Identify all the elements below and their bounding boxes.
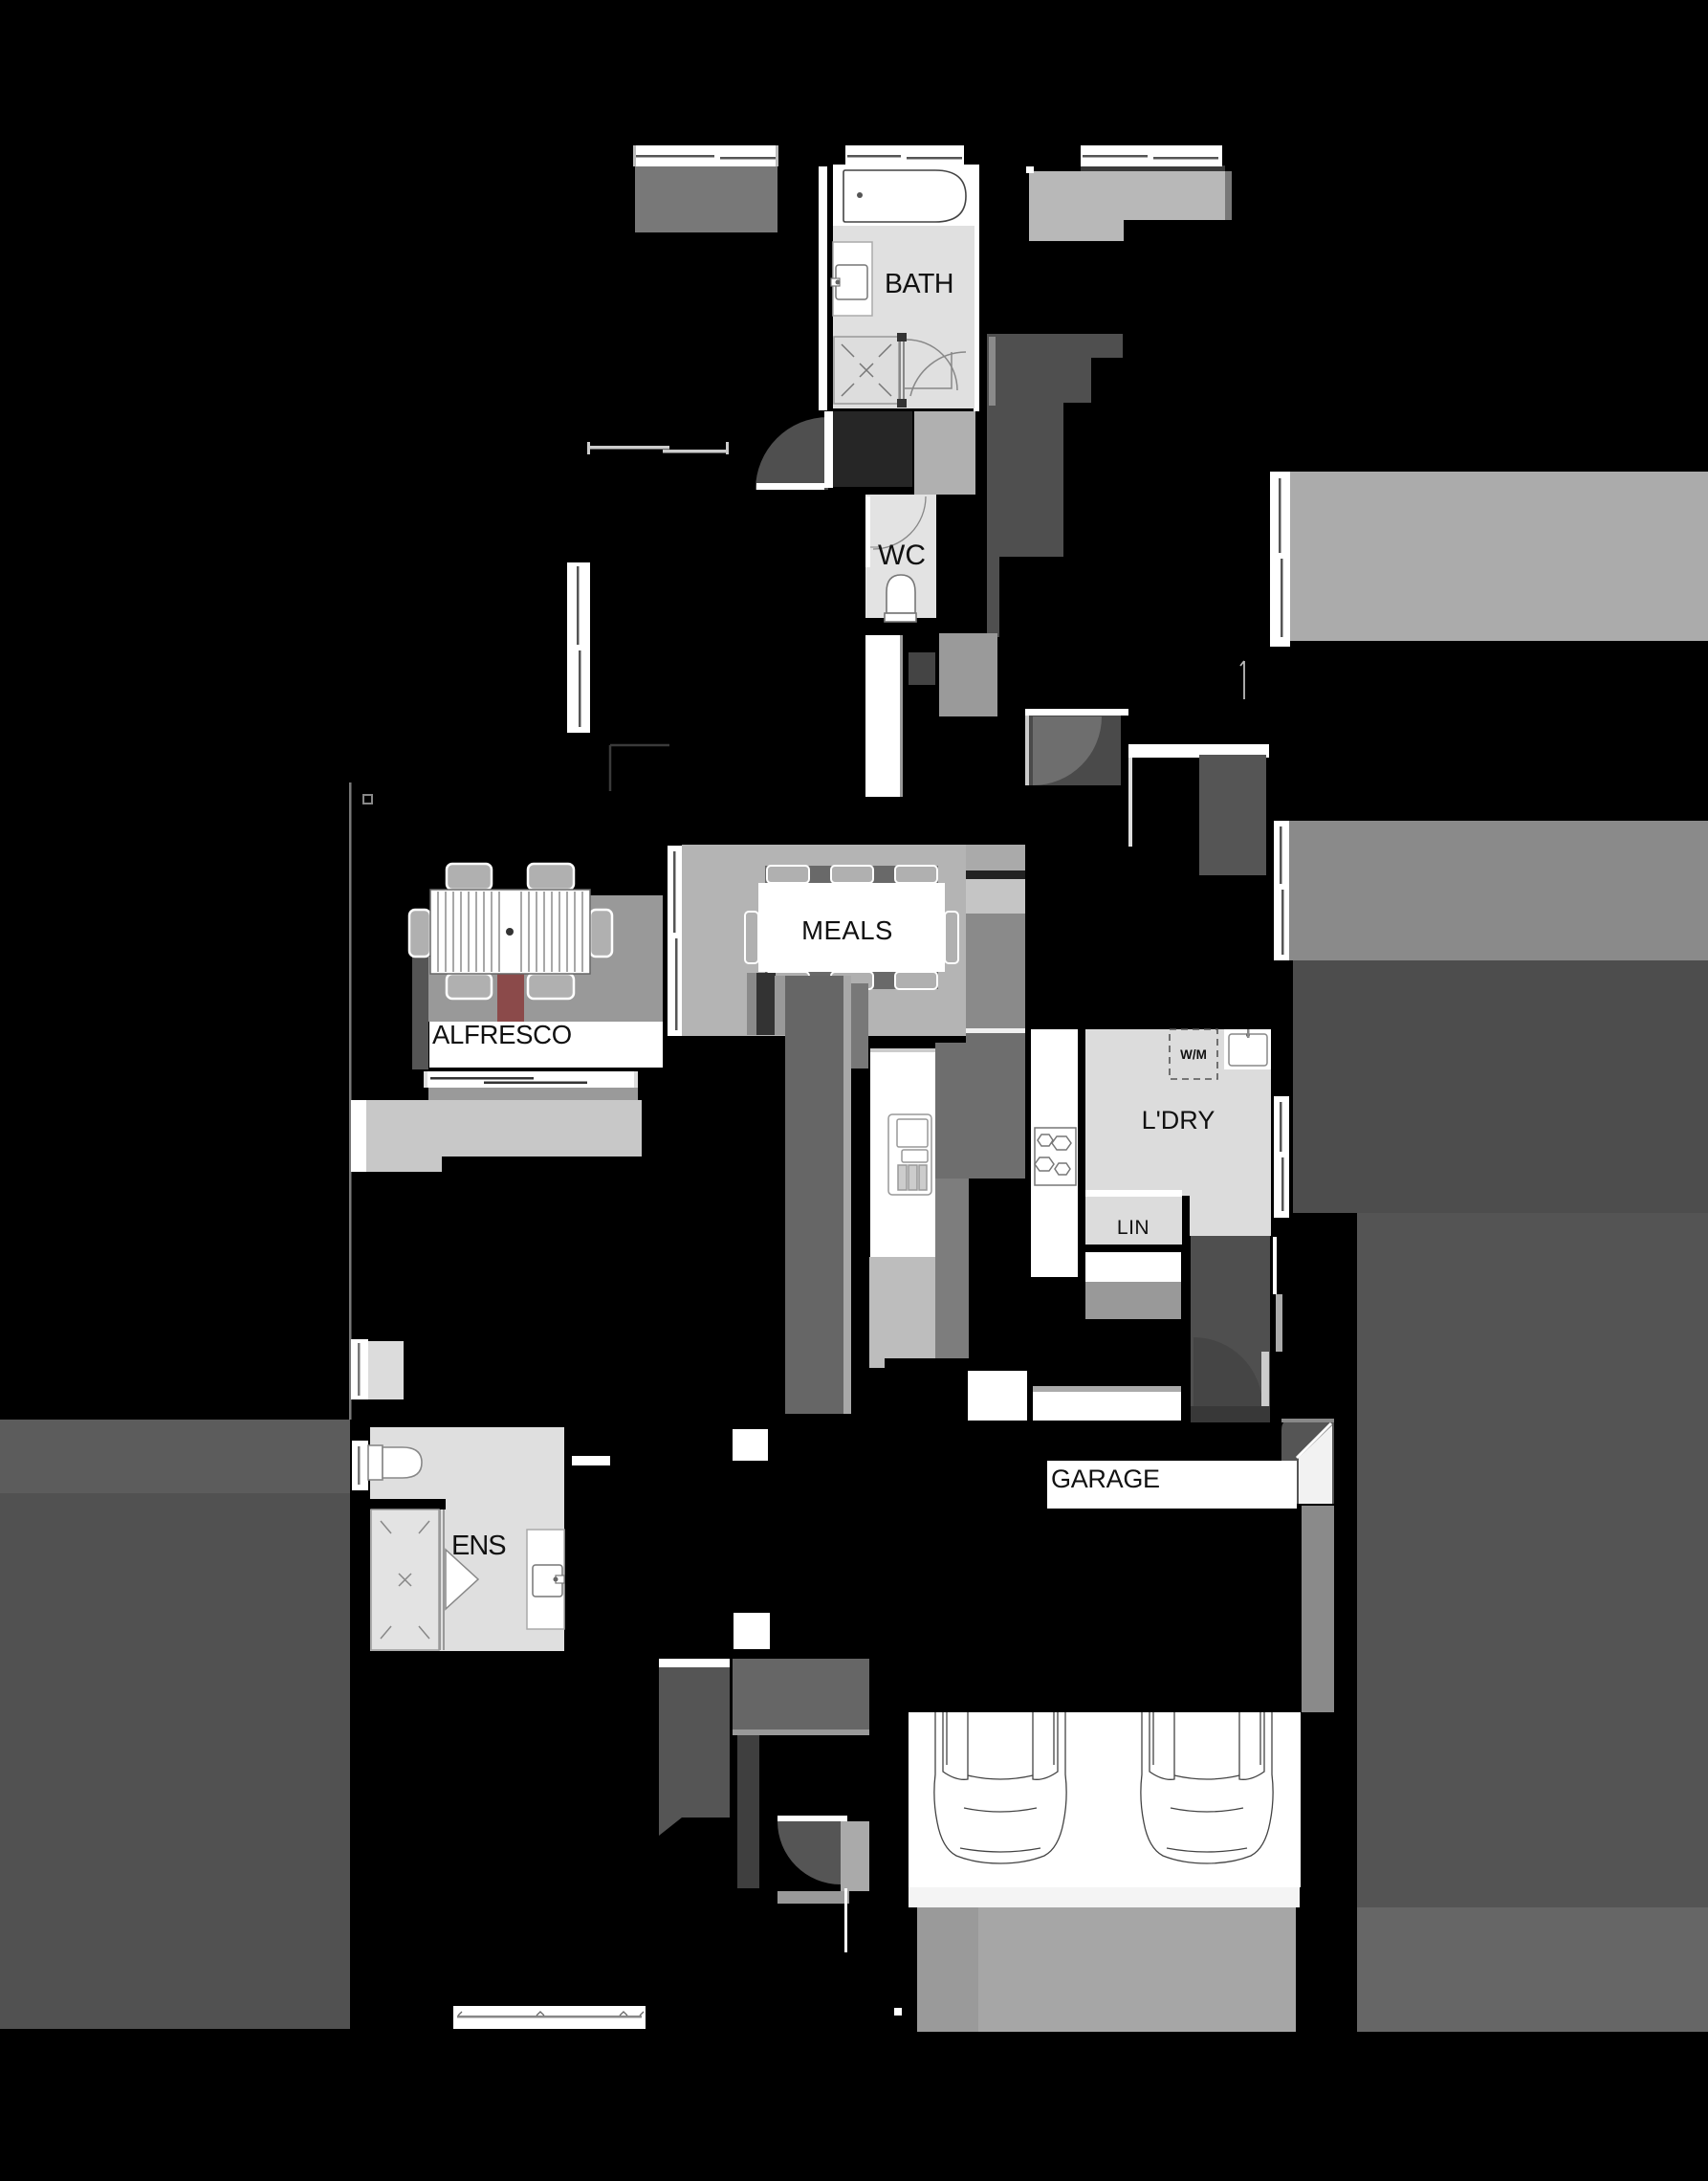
svg-text:W/M: W/M	[1180, 1047, 1207, 1062]
svg-text:GARAGE: GARAGE	[1051, 1465, 1160, 1493]
svg-text:ENS: ENS	[451, 1531, 506, 1561]
svg-text:WC: WC	[878, 540, 926, 571]
svg-text:L'DRY: L'DRY	[1142, 1106, 1215, 1135]
svg-text:ALFRESCO: ALFRESCO	[432, 1020, 572, 1049]
svg-text:BATH: BATH	[885, 269, 953, 299]
svg-text:MEALS: MEALS	[801, 915, 893, 945]
svg-text:LIN: LIN	[1117, 1217, 1150, 1239]
